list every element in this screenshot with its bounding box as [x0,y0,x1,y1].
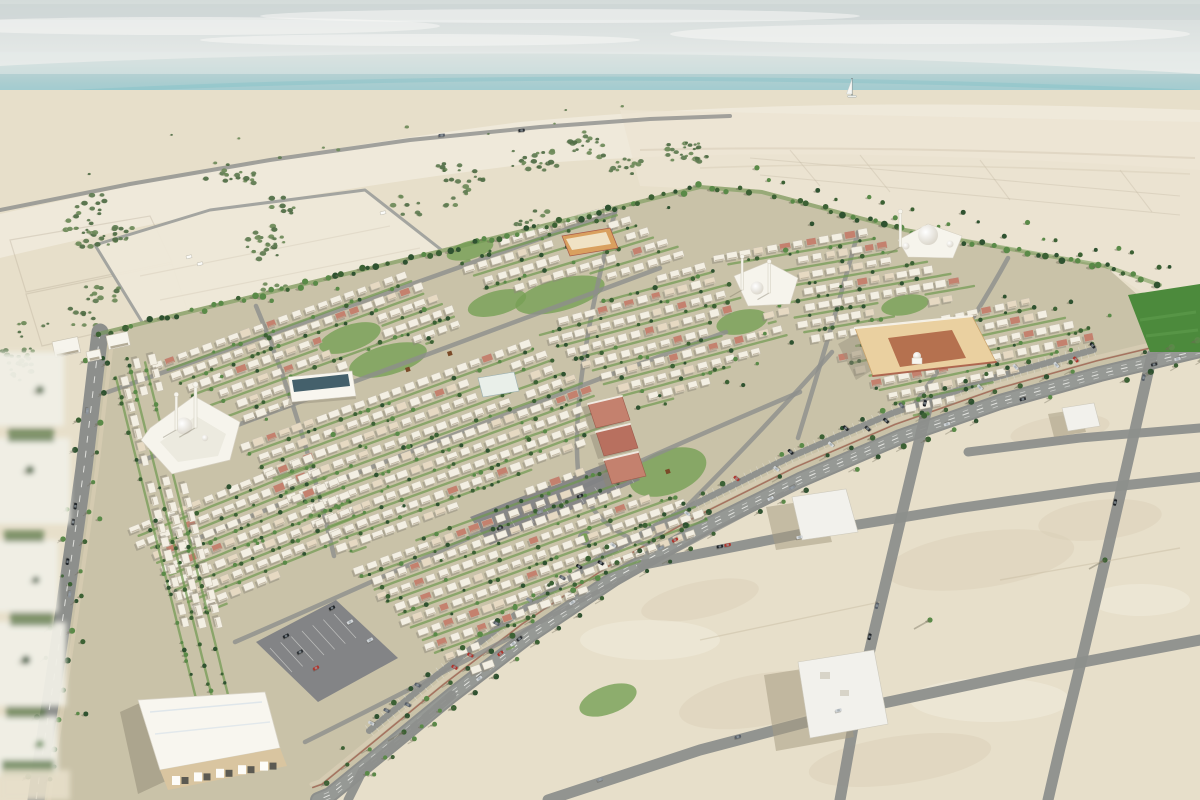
villa-roof [839,264,849,272]
palm-tree-icon [358,298,362,302]
villa-roof [812,318,822,326]
shrub-icon [540,214,545,218]
palm-tree-icon [234,529,238,533]
palm-tree-icon [840,259,844,263]
palm-tree-icon [381,472,385,476]
palm-tree-icon [880,200,885,205]
palm-tree-icon [424,602,429,607]
palm-tree-icon [608,518,613,523]
shrub-icon [226,163,230,166]
palm-tree-icon [436,502,440,506]
shrub-icon [600,144,605,148]
shrub-icon [266,243,271,247]
palm-tree-icon [808,314,811,317]
shrub-icon [112,237,118,242]
shrub-icon [621,105,624,107]
palm-tree-icon [594,219,599,224]
shrub-icon [589,148,592,150]
palm-tree-icon [523,351,527,355]
palm-tree-icon [491,527,496,532]
shrub-icon [97,212,101,215]
palm-tree-icon [480,254,484,258]
palm-tree-icon [285,491,288,494]
palm-tree-icon [1086,326,1090,330]
palm-tree-icon [337,505,341,509]
palm-tree-icon [609,298,614,303]
palm-tree-icon [232,363,236,367]
palm-tree-icon [128,324,133,329]
palm-tree-icon [636,291,640,295]
palm-tree-icon [496,281,500,285]
palm-tree-icon [638,355,643,360]
shrub-icon [87,219,90,222]
shrub-icon [41,324,45,327]
palm-tree-icon [634,527,637,530]
palm-tree-icon [490,483,494,487]
palm-tree-icon [629,292,632,295]
palm-tree-icon [516,472,520,476]
palm-tree-icon [378,340,383,345]
palm-tree-icon [1017,309,1021,313]
shrub-icon [529,219,533,222]
shrub-icon [279,204,285,209]
palm-tree-icon [488,580,492,584]
shrub-icon [582,130,586,133]
palm-tree-icon [221,672,224,675]
shrub-icon [221,168,227,172]
palm-tree-icon [311,315,315,319]
shrub-icon [512,150,515,152]
palm-tree-icon [649,319,653,323]
shrub-icon [124,230,129,234]
palm-tree-icon [260,465,264,469]
shrub-icon [442,169,445,172]
palm-tree-icon [302,279,308,285]
shrub-icon [472,169,477,173]
palm-tree-icon [400,498,404,502]
palm-tree-icon [174,314,179,319]
palm-tree-icon [997,347,1000,350]
palm-tree-icon [335,471,339,475]
palm-tree-icon [489,415,492,418]
palm-tree-icon [605,250,609,254]
palm-tree-icon [580,580,584,584]
palm-tree-icon [870,318,874,322]
shrub-icon [697,142,700,144]
shrub-icon [68,307,73,311]
palm-tree-icon [139,477,143,481]
palm-tree-icon [1130,250,1134,254]
villa-roof [838,248,848,257]
shrub-icon [674,150,679,154]
palm-tree-icon [380,490,383,493]
palm-tree-icon [808,281,812,285]
palm-tree-icon [522,368,526,372]
shrub-icon [683,146,686,148]
palm-tree-icon [872,237,875,240]
shrub-icon [336,148,340,151]
shrub-icon [462,184,469,189]
shrub-icon [549,150,556,155]
palm-tree-icon [386,520,390,524]
shrub-icon [237,137,240,139]
palm-tree-icon [472,551,476,555]
palm-tree-icon [202,308,208,314]
palm-tree-icon [626,227,629,230]
palm-tree-icon [313,281,318,286]
palm-tree-icon [547,394,551,398]
palm-tree-icon [170,540,174,544]
palm-tree-icon [303,519,306,522]
shrub-icon [548,160,555,165]
palm-tree-icon [815,188,820,193]
shrub-icon [119,227,124,231]
shrub-icon [252,174,256,177]
palm-tree-icon [367,348,370,351]
palm-tree-icon [583,494,587,498]
palm-tree-icon [532,399,536,403]
shrub-icon [627,159,631,162]
palm-tree-icon [559,588,562,591]
palm-tree-icon [250,354,254,358]
palm-tree-icon [687,342,691,346]
palm-tree-icon [421,252,426,257]
palm-tree-icon [977,220,980,223]
palm-tree-icon [547,233,551,237]
palm-tree-icon [452,462,456,466]
shrub-icon [170,134,173,136]
shrub-icon [523,156,528,159]
palm-tree-icon [490,466,495,471]
palm-tree-icon [598,489,602,493]
shrub-icon [694,143,697,145]
palm-tree-icon [489,237,494,242]
shrub-icon [443,203,449,207]
shrub-icon [449,178,454,182]
palm-tree-icon [346,536,349,539]
palm-tree-icon [212,573,215,576]
palm-tree-icon [497,480,500,483]
shrub-icon [601,154,606,158]
palm-tree-icon [408,254,414,260]
palm-tree-icon [254,405,258,409]
palm-tree-icon [208,540,213,545]
palm-tree-icon [978,318,982,322]
palm-tree-icon [796,299,801,304]
shrub-icon [455,179,461,184]
palm-tree-icon [704,517,707,520]
palm-tree-icon [507,523,510,526]
shrub-icon [103,235,106,237]
palm-tree-icon [635,201,640,206]
palm-tree-icon [154,402,159,407]
palm-tree-icon [515,232,520,237]
shrub-icon [405,125,409,128]
palm-tree-icon [532,614,536,618]
palm-tree-icon [500,610,504,614]
shrub-icon [243,176,250,181]
palm-tree-icon [463,589,466,592]
palm-tree-icon [1067,332,1070,335]
palm-tree-icon [564,439,568,443]
palm-tree-icon [603,219,606,222]
palm-tree-icon [554,375,557,378]
villa-roof [844,296,855,304]
palm-tree-icon [395,432,399,436]
palm-tree-icon [225,585,228,588]
palm-tree-icon [278,510,283,515]
shrub-icon [17,323,20,326]
shrub-icon [213,161,217,164]
palm-tree-icon [893,215,898,220]
palm-tree-icon [390,416,395,421]
palm-tree-icon [298,285,304,291]
palm-tree-icon [407,478,411,482]
palm-tree-icon [702,373,705,376]
villa-roof [819,235,830,243]
palm-tree-icon [555,574,558,577]
villa-roof [826,267,836,275]
palm-tree-icon [147,316,153,322]
palm-tree-icon [482,486,486,490]
palm-tree-icon [867,195,871,199]
palm-tree-icon [646,356,650,360]
shrub-icon [292,206,296,209]
palm-tree-icon [526,615,531,620]
palm-tree-icon [636,405,641,410]
villa-roof [831,298,842,307]
palm-tree-icon [149,382,152,385]
palm-tree-icon [415,458,419,462]
shrub-icon [83,239,89,243]
shrub-icon [518,223,522,226]
palm-tree-icon [826,294,829,297]
palm-tree-icon [556,217,562,223]
shrub-icon [624,166,628,169]
shrub-icon [87,244,93,249]
palm-tree-icon [350,550,353,553]
palm-tree-icon [279,494,283,498]
palm-tree-icon [279,286,283,290]
palm-tree-icon [447,526,452,531]
shrub-icon [20,335,23,337]
palm-tree-icon [434,532,438,536]
shrub-icon [533,209,537,212]
shrub-icon [609,169,613,172]
shrub-icon [90,294,93,297]
shrub-icon [82,232,85,234]
palm-tree-icon [554,555,558,559]
shrub-icon [21,321,27,325]
palm-tree-icon [447,465,450,468]
palm-tree-icon [433,320,437,324]
palm-tree-icon [186,531,190,535]
palm-tree-icon [754,165,759,170]
palm-tree-icon [278,546,281,549]
villa-roof [1044,341,1054,350]
shrub-icon [71,323,75,326]
palm-tree-icon [673,189,677,193]
palm-tree-icon [305,482,309,486]
palm-tree-icon [601,555,604,558]
palm-tree-icon [612,207,617,212]
palm-tree-icon [546,592,550,596]
shrub-icon [92,230,98,235]
palm-tree-icon [366,408,371,413]
palm-tree-icon [232,343,236,347]
palm-tree-icon [549,557,553,561]
shrub-icon [89,193,95,198]
villa-roof [844,230,856,239]
shrub-icon [74,227,79,230]
shrub-icon [399,195,404,198]
palm-tree-icon [496,236,502,242]
palm-tree-icon [452,376,457,381]
palm-tree-icon [727,282,732,287]
palm-tree-icon [545,225,549,229]
palm-tree-icon [129,370,134,375]
shrub-icon [525,167,531,172]
villa-roof [1083,333,1094,342]
palm-tree-icon [338,271,344,277]
palm-tree-icon [237,580,241,584]
palm-tree-icon [579,399,582,402]
shrub-icon [264,248,269,252]
palm-tree-icon [578,216,585,223]
shrub-icon [390,203,396,208]
palm-tree-icon [218,301,223,306]
palm-tree-icon [204,371,208,375]
palm-tree-icon [561,372,566,377]
cloud [670,24,1190,44]
palm-tree-icon [422,536,426,540]
palm-tree-icon [317,331,321,335]
palm-tree-icon [668,496,672,500]
palm-tree-icon [312,365,317,370]
palm-tree-icon [260,536,264,540]
shrub-icon [417,213,422,217]
palm-tree-icon [1078,328,1083,333]
palm-tree-icon [567,229,571,233]
palm-tree-icon [834,198,837,201]
palm-tree-icon [539,449,543,453]
palm-tree-icon [485,285,489,289]
palm-tree-icon [236,296,241,301]
palm-tree-icon [542,268,547,273]
shrub-icon [203,177,209,181]
palm-tree-icon [574,356,579,361]
shrub-icon [281,196,286,200]
palm-tree-icon [155,408,159,412]
shrub-icon [537,165,542,169]
palm-tree-icon [1050,353,1053,356]
palm-tree-icon [560,406,563,409]
shrub-icon [234,173,240,177]
palm-tree-icon [399,561,404,566]
palm-tree-icon [371,422,375,426]
palm-tree-icon [520,421,523,424]
shrub-icon [118,237,122,240]
palm-tree-icon [401,334,404,337]
shrub-icon [239,171,242,174]
palm-tree-icon [318,514,321,517]
palm-tree-icon [128,364,132,368]
palm-tree-icon [464,555,467,558]
palm-tree-icon [273,530,277,534]
palm-tree-icon [460,262,464,266]
palm-tree-icon [318,495,322,499]
palm-tree-icon [352,272,356,276]
palm-tree-icon [113,377,116,380]
palm-tree-icon [599,317,602,320]
palm-tree-icon [446,316,451,321]
palm-tree-icon [506,505,510,509]
shrub-icon [453,203,458,207]
shrub-icon [280,236,284,239]
shrub-icon [75,205,79,208]
palm-tree-icon [513,623,517,627]
shrub-icon [29,348,32,350]
shrub-icon [693,148,696,150]
shrub-icon [289,211,293,214]
palm-tree-icon [120,395,124,399]
palm-tree-icon [197,576,201,580]
shrub-icon [84,285,88,288]
palm-tree-icon [796,250,799,253]
palm-tree-icon [296,539,300,543]
shrub-icon [564,109,567,111]
palm-tree-icon [221,399,225,403]
shrub-icon [125,237,128,240]
shrub-icon [273,237,277,240]
villa-roof [831,233,842,241]
palm-tree-icon [368,573,371,576]
shrub-icon [263,282,268,285]
villa-roof [865,309,875,317]
shrub-icon [623,158,627,161]
palm-tree-icon [587,544,591,548]
palm-tree-icon [1002,234,1007,239]
shrub-icon [261,288,266,292]
palm-tree-icon [1055,350,1059,354]
palm-tree-icon [349,464,353,468]
palm-tree-icon [246,543,250,547]
palm-tree-icon [324,545,327,548]
palm-tree-icon [372,263,379,270]
villa-roof [943,295,953,303]
palm-tree-icon [531,347,534,350]
shrub-icon [253,231,259,235]
palm-tree-icon [900,281,904,285]
palm-tree-icon [379,505,383,509]
shrub-icon [322,147,325,149]
shrub-icon [88,173,91,175]
shrub-icon [86,230,90,233]
palm-tree-icon [543,561,548,566]
palm-tree-icon [393,335,397,339]
palm-tree-icon [192,375,195,378]
villa-roof [851,311,862,320]
palm-tree-icon [353,412,357,416]
palm-tree-icon [660,300,663,303]
sand-light [1090,584,1190,616]
palm-tree-icon [818,329,821,332]
palm-tree-icon [565,500,569,504]
palm-tree-icon [190,610,193,613]
shrub-icon [458,169,461,171]
palm-tree-icon [359,531,363,535]
palm-tree-icon [552,330,555,333]
